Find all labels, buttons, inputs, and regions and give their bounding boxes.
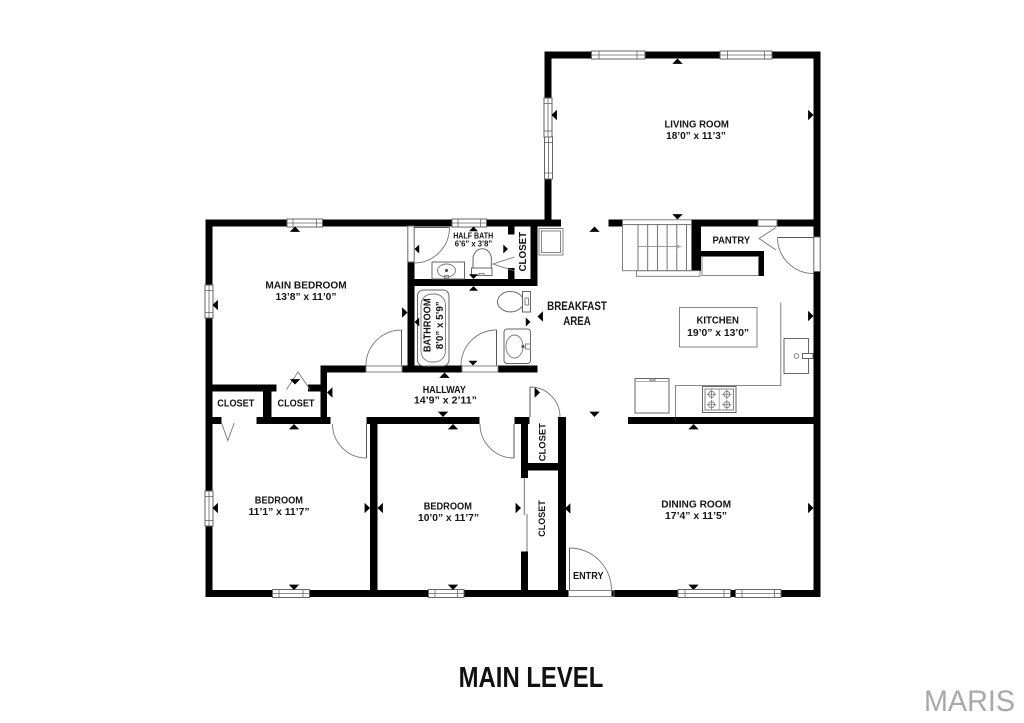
svg-text:18’0” x 11’3”: 18’0” x 11’3” xyxy=(666,130,726,142)
svg-text:17’4” x 11’5”: 17’4” x 11’5” xyxy=(665,510,727,522)
svg-text:6’6” x 3’8”: 6’6” x 3’8” xyxy=(455,238,493,248)
svg-text:11’1” x 11’7”: 11’1” x 11’7” xyxy=(249,506,310,518)
svg-text:PANTRY: PANTRY xyxy=(713,234,751,246)
svg-text:14’9” x 2’11”: 14’9” x 2’11” xyxy=(414,394,477,406)
svg-text:BEDROOM: BEDROOM xyxy=(424,501,472,513)
svg-text:BEDROOM: BEDROOM xyxy=(255,495,303,507)
svg-text:10’0” x 11’7”: 10’0” x 11’7” xyxy=(418,512,479,524)
svg-text:BREAKFAST: BREAKFAST xyxy=(547,299,607,313)
svg-text:CLOSET: CLOSET xyxy=(537,500,548,537)
svg-text:19’0” x 13’0”: 19’0” x 13’0” xyxy=(687,327,749,339)
svg-text:CLOSET: CLOSET xyxy=(217,398,254,409)
svg-text:CLOSET: CLOSET xyxy=(518,232,529,272)
svg-text:LIVING ROOM: LIVING ROOM xyxy=(664,118,729,130)
svg-text:MAIN BEDROOM: MAIN BEDROOM xyxy=(265,279,347,291)
svg-text:13’8” x 11’0”: 13’8” x 11’0” xyxy=(276,291,337,303)
svg-text:BATHROOM: BATHROOM xyxy=(422,298,434,352)
svg-text:DINING ROOM: DINING ROOM xyxy=(661,498,731,510)
svg-text:CLOSET: CLOSET xyxy=(278,398,315,409)
svg-text:MAIN LEVEL: MAIN LEVEL xyxy=(459,662,604,694)
svg-text:ENTRY: ENTRY xyxy=(573,571,604,582)
svg-text:AREA: AREA xyxy=(563,314,591,328)
svg-text:8’0” x 5’9”: 8’0” x 5’9” xyxy=(434,301,446,349)
svg-text:MARIS: MARIS xyxy=(924,685,1015,718)
svg-text:CLOSET: CLOSET xyxy=(537,423,548,461)
svg-text:KITCHEN: KITCHEN xyxy=(696,314,739,326)
